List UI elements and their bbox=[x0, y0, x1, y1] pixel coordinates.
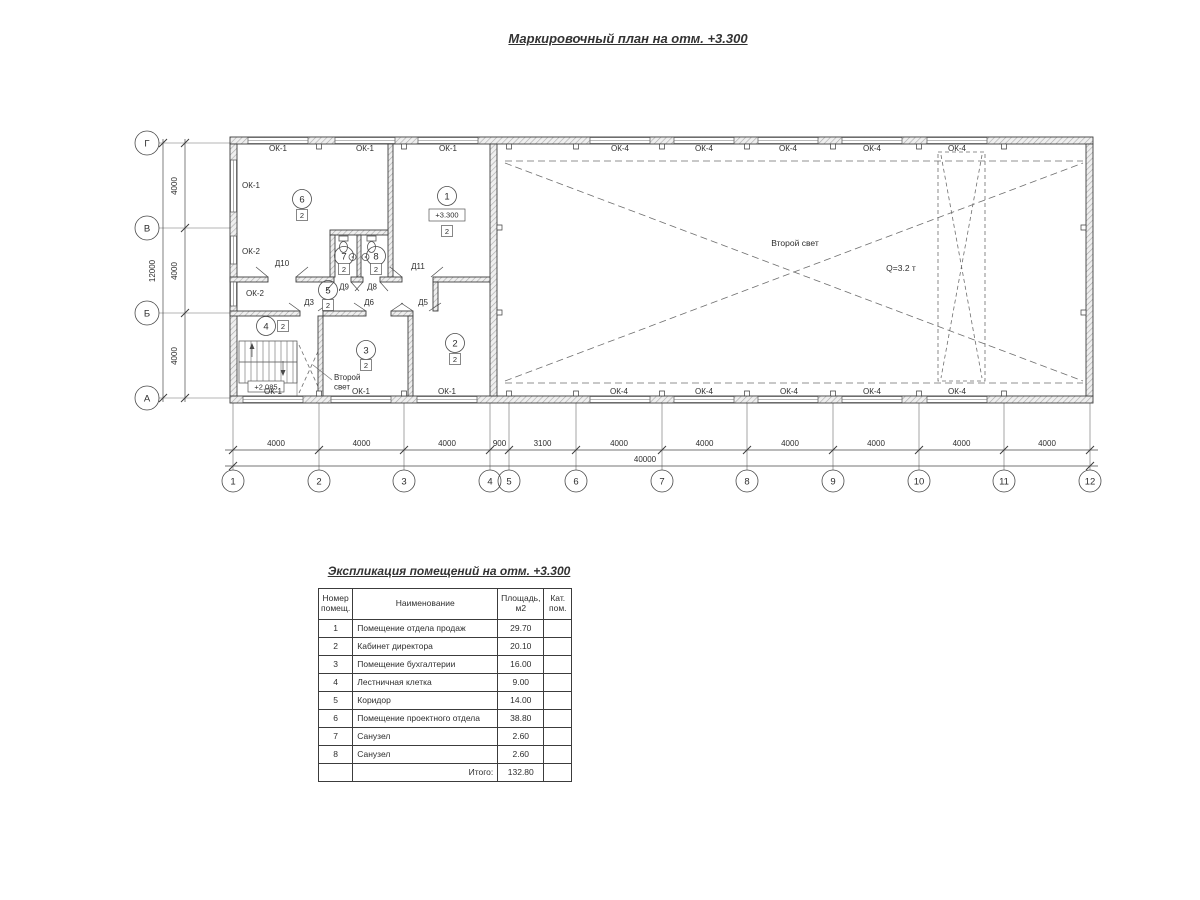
row-area: 38.80 bbox=[498, 710, 544, 728]
row-cat bbox=[544, 656, 572, 674]
dim-total-vertical: 12000 bbox=[148, 259, 157, 282]
explication-table: Номерпомещ. Наименование Площадь,м2 Кат.… bbox=[318, 588, 572, 782]
dim-h-0: 4000 bbox=[267, 439, 285, 448]
dim-h-3: 900 bbox=[493, 439, 507, 448]
window-ok1-bottom bbox=[331, 397, 391, 403]
office-hall-divider-wall bbox=[490, 144, 497, 396]
total-label: Итого: bbox=[353, 764, 498, 782]
column-axis-bubbles: 123456789101112 bbox=[222, 470, 1101, 492]
dimension-lines bbox=[159, 139, 1098, 470]
door-label-d8: Д8 bbox=[367, 283, 377, 292]
door-label-d3: Д3 bbox=[304, 298, 314, 307]
window-label-ok1: ОК-1 bbox=[352, 387, 371, 396]
column-axis-label-4: 4 bbox=[487, 476, 492, 487]
stair-up-arrow bbox=[250, 343, 255, 357]
window-ok4-bottom bbox=[842, 397, 902, 403]
row-num: 8 bbox=[319, 746, 353, 764]
window-ok1-bottom bbox=[243, 397, 303, 403]
row-num: 2 bbox=[319, 638, 353, 656]
total-empty-cat bbox=[544, 764, 572, 782]
table-row: 3Помещение бухгалтерии16.00 bbox=[319, 656, 572, 674]
row-num: 6 bbox=[319, 710, 353, 728]
row-num: 1 bbox=[319, 620, 353, 638]
dim-h-7: 4000 bbox=[781, 439, 799, 448]
room-category-6: 2 bbox=[300, 211, 304, 220]
table-row: 8Санузел2.60 bbox=[319, 746, 572, 764]
walls bbox=[230, 137, 1093, 403]
dim-h-10: 4000 bbox=[1038, 439, 1056, 448]
drawing-sheet: Маркировочный план на отм. +3.300 bbox=[0, 0, 1200, 900]
row-area: 20.10 bbox=[498, 638, 544, 656]
room-number-2: 2 bbox=[452, 338, 457, 349]
row-name: Помещение отдела продаж bbox=[353, 620, 498, 638]
hall-dashed-lines bbox=[505, 152, 1083, 383]
row-area: 2.60 bbox=[498, 746, 544, 764]
row-axis-label-Б: Б bbox=[144, 309, 150, 320]
door-label-d6: Д6 bbox=[364, 298, 374, 307]
window-ok4-bottom bbox=[590, 397, 650, 403]
window-ok4-top bbox=[758, 138, 818, 144]
column-axis-label-9: 9 bbox=[830, 476, 835, 487]
window-ok4-bottom bbox=[758, 397, 818, 403]
row-num: 5 bbox=[319, 692, 353, 710]
room-category-4: 2 bbox=[281, 322, 285, 331]
dim-v-0: 4000 bbox=[170, 177, 179, 195]
table-row: 5Коридор14.00 bbox=[319, 692, 572, 710]
dim-h-4: 3100 bbox=[534, 439, 552, 448]
row-name: Помещение проектного отдела bbox=[353, 710, 498, 728]
row-area: 16.00 bbox=[498, 656, 544, 674]
second-light-label-stairs-line2: свет bbox=[334, 383, 350, 392]
room-number-4: 4 bbox=[263, 321, 268, 332]
dim-v-1: 4000 bbox=[170, 262, 179, 280]
column-axis-label-12: 12 bbox=[1085, 476, 1096, 487]
window-ok4-top bbox=[927, 138, 987, 144]
window-ok2-left bbox=[231, 282, 237, 306]
row-cat bbox=[544, 728, 572, 746]
row-axis-label-В: В bbox=[144, 224, 150, 235]
window-label-ok4: ОК-4 bbox=[863, 144, 882, 153]
table-row: 4Лестничная клетка9.00 bbox=[319, 674, 572, 692]
row-area: 29.70 bbox=[498, 620, 544, 638]
elevation-main: +3.300 bbox=[429, 209, 465, 221]
row-cat bbox=[544, 746, 572, 764]
col-header-number: Номерпомещ. bbox=[319, 589, 353, 620]
window-ok2-left bbox=[231, 236, 237, 264]
room-category-7: 2 bbox=[342, 265, 346, 274]
room-number-8: 8 bbox=[373, 251, 378, 262]
row-name: Кабинет директора bbox=[353, 638, 498, 656]
window-label-ok4: ОК-4 bbox=[695, 387, 714, 396]
window-ok1-top bbox=[418, 138, 478, 144]
dim-h-6: 4000 bbox=[696, 439, 714, 448]
row-num: 3 bbox=[319, 656, 353, 674]
dim-v-2: 4000 bbox=[170, 347, 179, 365]
window-label-ok2: ОК-2 bbox=[246, 289, 265, 298]
table-row: 1Помещение отдела продаж29.70 bbox=[319, 620, 572, 638]
window-label-ok4: ОК-4 bbox=[611, 144, 630, 153]
window-label-ok4: ОК-4 bbox=[780, 387, 799, 396]
window-label-ok1: ОК-1 bbox=[269, 144, 288, 153]
elevation-main-value: +3.300 bbox=[435, 211, 458, 220]
sink-8 bbox=[362, 254, 369, 261]
window-ok1-top bbox=[248, 138, 308, 144]
row-cat bbox=[544, 674, 572, 692]
explication-table-body: 1Помещение отдела продаж29.702Кабинет ди… bbox=[319, 620, 572, 764]
room-number-6: 6 bbox=[299, 194, 304, 205]
col-header-area: Площадь,м2 bbox=[498, 589, 544, 620]
dim-h-8: 4000 bbox=[867, 439, 885, 448]
total-value: 132.80 bbox=[498, 764, 544, 782]
window-label-ok4: ОК-4 bbox=[948, 144, 967, 153]
room-number-3: 3 bbox=[363, 345, 368, 356]
room-number-5: 5 bbox=[325, 285, 330, 296]
column-axis-label-5: 5 bbox=[506, 476, 511, 487]
col-header-category: Кат.пом. bbox=[544, 589, 572, 620]
window-label-ok4: ОК-4 bbox=[779, 144, 798, 153]
column-axis-label-7: 7 bbox=[659, 476, 664, 487]
column-marks bbox=[317, 144, 1087, 396]
door-label-d11: Д11 bbox=[411, 262, 425, 271]
total-empty-num bbox=[319, 764, 353, 782]
window-ok1-bottom bbox=[417, 397, 477, 403]
window-label-ok1: ОК-1 bbox=[439, 144, 458, 153]
row-area: 2.60 bbox=[498, 728, 544, 746]
window-label-ok4: ОК-4 bbox=[863, 387, 882, 396]
dim-h-9: 4000 bbox=[953, 439, 971, 448]
window-ok4-bottom bbox=[674, 397, 734, 403]
col-header-name: Наименование bbox=[353, 589, 498, 620]
row-name: Санузел bbox=[353, 746, 498, 764]
row-axis-label-Г: Г bbox=[144, 139, 149, 150]
room-category-8: 2 bbox=[374, 265, 378, 274]
window-ok1-top bbox=[335, 138, 395, 144]
vertical-dim-labels: 400040004000 bbox=[170, 177, 179, 365]
stair-light-well bbox=[297, 343, 321, 396]
window-label-ok1: ОК-1 bbox=[356, 144, 375, 153]
row-axis-label-А: А bbox=[144, 394, 151, 405]
dim-total-horizontal: 40000 bbox=[634, 455, 657, 464]
dim-h-5: 4000 bbox=[610, 439, 628, 448]
table-row: 7Санузел2.60 bbox=[319, 728, 572, 746]
window-label-ok1: ОК-1 bbox=[438, 387, 457, 396]
wc-7 bbox=[339, 236, 348, 253]
row-cat bbox=[544, 638, 572, 656]
window-ok4-top bbox=[590, 138, 650, 144]
column-axis-label-3: 3 bbox=[401, 476, 406, 487]
room-number-1: 1 bbox=[444, 191, 449, 202]
row-area: 14.00 bbox=[498, 692, 544, 710]
second-light-label-stairs-line1: Второй bbox=[334, 373, 360, 382]
row-cat bbox=[544, 710, 572, 728]
row-num: 4 bbox=[319, 674, 353, 692]
floor-plan: +3.300 +2.085 Второй свет Q=3.2 т Второй… bbox=[0, 0, 1200, 520]
table-row: 2Кабинет директора20.10 bbox=[319, 638, 572, 656]
second-light-label-hall: Второй свет bbox=[771, 238, 819, 248]
staircase bbox=[239, 341, 297, 383]
dim-h-2: 4000 bbox=[438, 439, 456, 448]
door-label-d10: Д10 bbox=[275, 259, 290, 268]
room-number-7: 7 bbox=[341, 251, 346, 262]
window-labels: ОК-1ОК-1ОК-1ОК-4ОК-4ОК-4ОК-4ОК-4ОК-1ОК-1… bbox=[242, 144, 967, 396]
axis-extension-lines bbox=[159, 143, 1090, 470]
column-axis-label-1: 1 bbox=[230, 476, 235, 487]
window-ok4-top bbox=[842, 138, 902, 144]
explication-title: Экспликация помещений на отм. +3.300 bbox=[199, 564, 699, 578]
row-name: Лестничная клетка bbox=[353, 674, 498, 692]
row-cat bbox=[544, 620, 572, 638]
total-row: Итого: 132.80 bbox=[319, 764, 572, 782]
table-row: 6Помещение проектного отдела38.80 bbox=[319, 710, 572, 728]
row-name: Санузел bbox=[353, 728, 498, 746]
window-label-ok4: ОК-4 bbox=[948, 387, 967, 396]
room-category-5: 2 bbox=[326, 301, 330, 310]
room-category-1: 2 bbox=[445, 227, 449, 236]
room-category-2: 2 bbox=[453, 355, 457, 364]
window-label-ok1: ОК-1 bbox=[242, 181, 261, 190]
row-area: 9.00 bbox=[498, 674, 544, 692]
row-cat bbox=[544, 692, 572, 710]
window-ok4-top bbox=[674, 138, 734, 144]
column-axis-label-11: 11 bbox=[999, 476, 1009, 487]
row-name: Коридор bbox=[353, 692, 498, 710]
row-num: 7 bbox=[319, 728, 353, 746]
door-label-d9: Д9 bbox=[339, 283, 349, 292]
column-axis-label-8: 8 bbox=[744, 476, 749, 487]
window-label-ok2: ОК-2 bbox=[242, 247, 261, 256]
window-label-ok1: ОК-1 bbox=[264, 387, 283, 396]
column-axis-label-10: 10 bbox=[914, 476, 925, 487]
column-axis-label-2: 2 bbox=[316, 476, 321, 487]
crane-capacity-label: Q=3.2 т bbox=[886, 263, 916, 273]
window-label-ok4: ОК-4 bbox=[610, 387, 629, 396]
door-label-d5: Д5 bbox=[418, 298, 428, 307]
row-name: Помещение бухгалтерии bbox=[353, 656, 498, 674]
column-axis-label-6: 6 bbox=[573, 476, 578, 487]
header-row: Номерпомещ. Наименование Площадь,м2 Кат.… bbox=[319, 589, 572, 620]
window-ok4-bottom bbox=[927, 397, 987, 403]
window-label-ok4: ОК-4 bbox=[695, 144, 714, 153]
dim-h-1: 4000 bbox=[353, 439, 371, 448]
window-ok1-left bbox=[231, 160, 237, 212]
room-category-3: 2 bbox=[364, 361, 368, 370]
